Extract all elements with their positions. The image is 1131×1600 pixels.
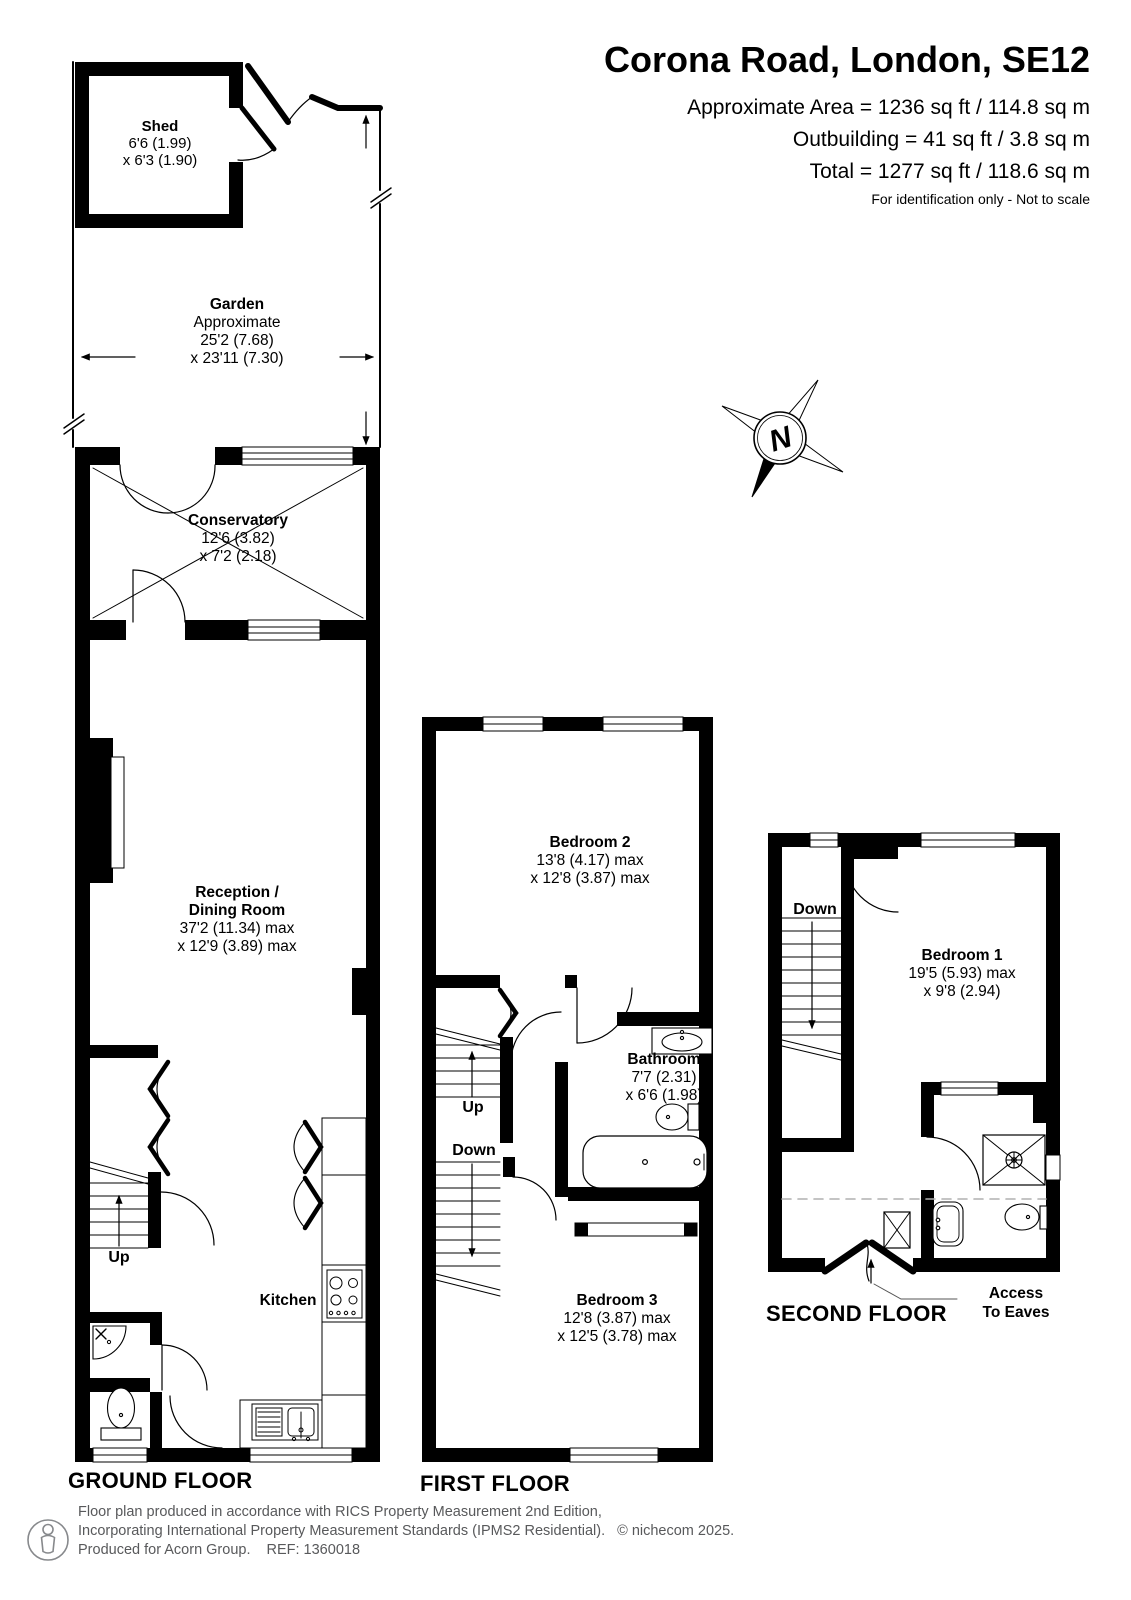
hob-icon — [327, 1270, 362, 1318]
floorplan-canvas: N — [0, 0, 1131, 1600]
shower-icon — [983, 1135, 1045, 1185]
conservatory-label: Conservatory 12'6 (3.82) x 7'2 (2.18) — [188, 512, 288, 566]
corner-basin-icon — [93, 1326, 126, 1359]
shed-label: Shed 6'6 (1.99) x 6'3 (1.90) — [123, 118, 198, 169]
page-title: Corona Road, London, SE12 — [604, 40, 1090, 80]
kitchen-sink-icon — [252, 1404, 318, 1441]
reference-number: REF: 1360018 — [267, 1542, 361, 1558]
stairs-down-label-first: Down — [452, 1142, 496, 1160]
bathroom-label: Bathroom 7'7 (2.31) x 6'6 (1.98) — [625, 1051, 702, 1105]
sink-icon-second — [933, 1202, 963, 1246]
stairs-down-label-second: Down — [793, 901, 837, 919]
second-floor-title: SECOND FLOOR — [766, 1301, 947, 1327]
toilet-icon-first — [656, 1104, 699, 1130]
garden-label: Garden Approximate 25'2 (7.68) x 23'11 (… — [190, 296, 283, 368]
eaves-hatch — [884, 1212, 910, 1248]
copyright: © nichecom 2025. — [617, 1523, 734, 1539]
footer-line1: Floor plan produced in accordance with R… — [78, 1503, 602, 1522]
title-block: Corona Road, London, SE12 Approximate Ar… — [604, 40, 1090, 207]
outbuilding-line: Outbuilding = 41 sq ft / 3.8 sq m — [604, 124, 1090, 156]
second-floor-doors — [845, 859, 980, 1190]
stairs-up-label-ground: Up — [108, 1249, 129, 1267]
bathtub-icon — [583, 1136, 707, 1188]
ground-staircase — [90, 1162, 148, 1248]
toilet-icon-ground — [101, 1388, 141, 1440]
first-floor-stairs-down — [436, 1162, 500, 1296]
bedroom2-label: Bedroom 2 13'8 (4.17) max x 12'8 (3.87) … — [530, 834, 649, 888]
floorplan-page: N Corona Road, London, SE12 Approximate … — [0, 0, 1131, 1600]
footer-line3: Produced for Acorn Group.REF: 1360018 — [78, 1541, 360, 1560]
person-icon — [28, 1520, 68, 1560]
fireplace — [111, 757, 124, 868]
first-floor-title: FIRST FLOOR — [420, 1471, 570, 1497]
folding-doors — [150, 1062, 321, 1228]
access-to-eaves-label: Access To Eaves — [983, 1284, 1050, 1322]
bedroom1-label: Bedroom 1 19'5 (5.93) max x 9'8 (2.94) — [908, 947, 1015, 1001]
scale-note: For identification only - Not to scale — [604, 191, 1090, 207]
garden-fence — [64, 62, 391, 447]
kitchen-label: Kitchen — [260, 1292, 317, 1310]
total-area-line: Total = 1277 sq ft / 118.6 sq m — [604, 156, 1090, 188]
stairs-up-label-first: Up — [462, 1099, 483, 1117]
ground-door-arcs — [161, 1192, 222, 1448]
reception-label: Reception / Dining Room 37'2 (11.34) max… — [177, 884, 296, 956]
approx-area-line: Approximate Area = 1236 sq ft / 114.8 sq… — [604, 92, 1090, 124]
ground-floor-title: GROUND FLOOR — [68, 1468, 252, 1494]
bedroom3-label: Bedroom 3 12'8 (3.87) max x 12'5 (3.78) … — [557, 1292, 676, 1346]
second-floor-stairs-down — [782, 918, 841, 1060]
toilet-icon-second — [1005, 1204, 1047, 1230]
compass-rose-icon: N — [722, 380, 843, 497]
footer-line2: Incorporating International Property Mea… — [78, 1522, 734, 1541]
first-floor-stairs-up — [436, 1028, 500, 1097]
